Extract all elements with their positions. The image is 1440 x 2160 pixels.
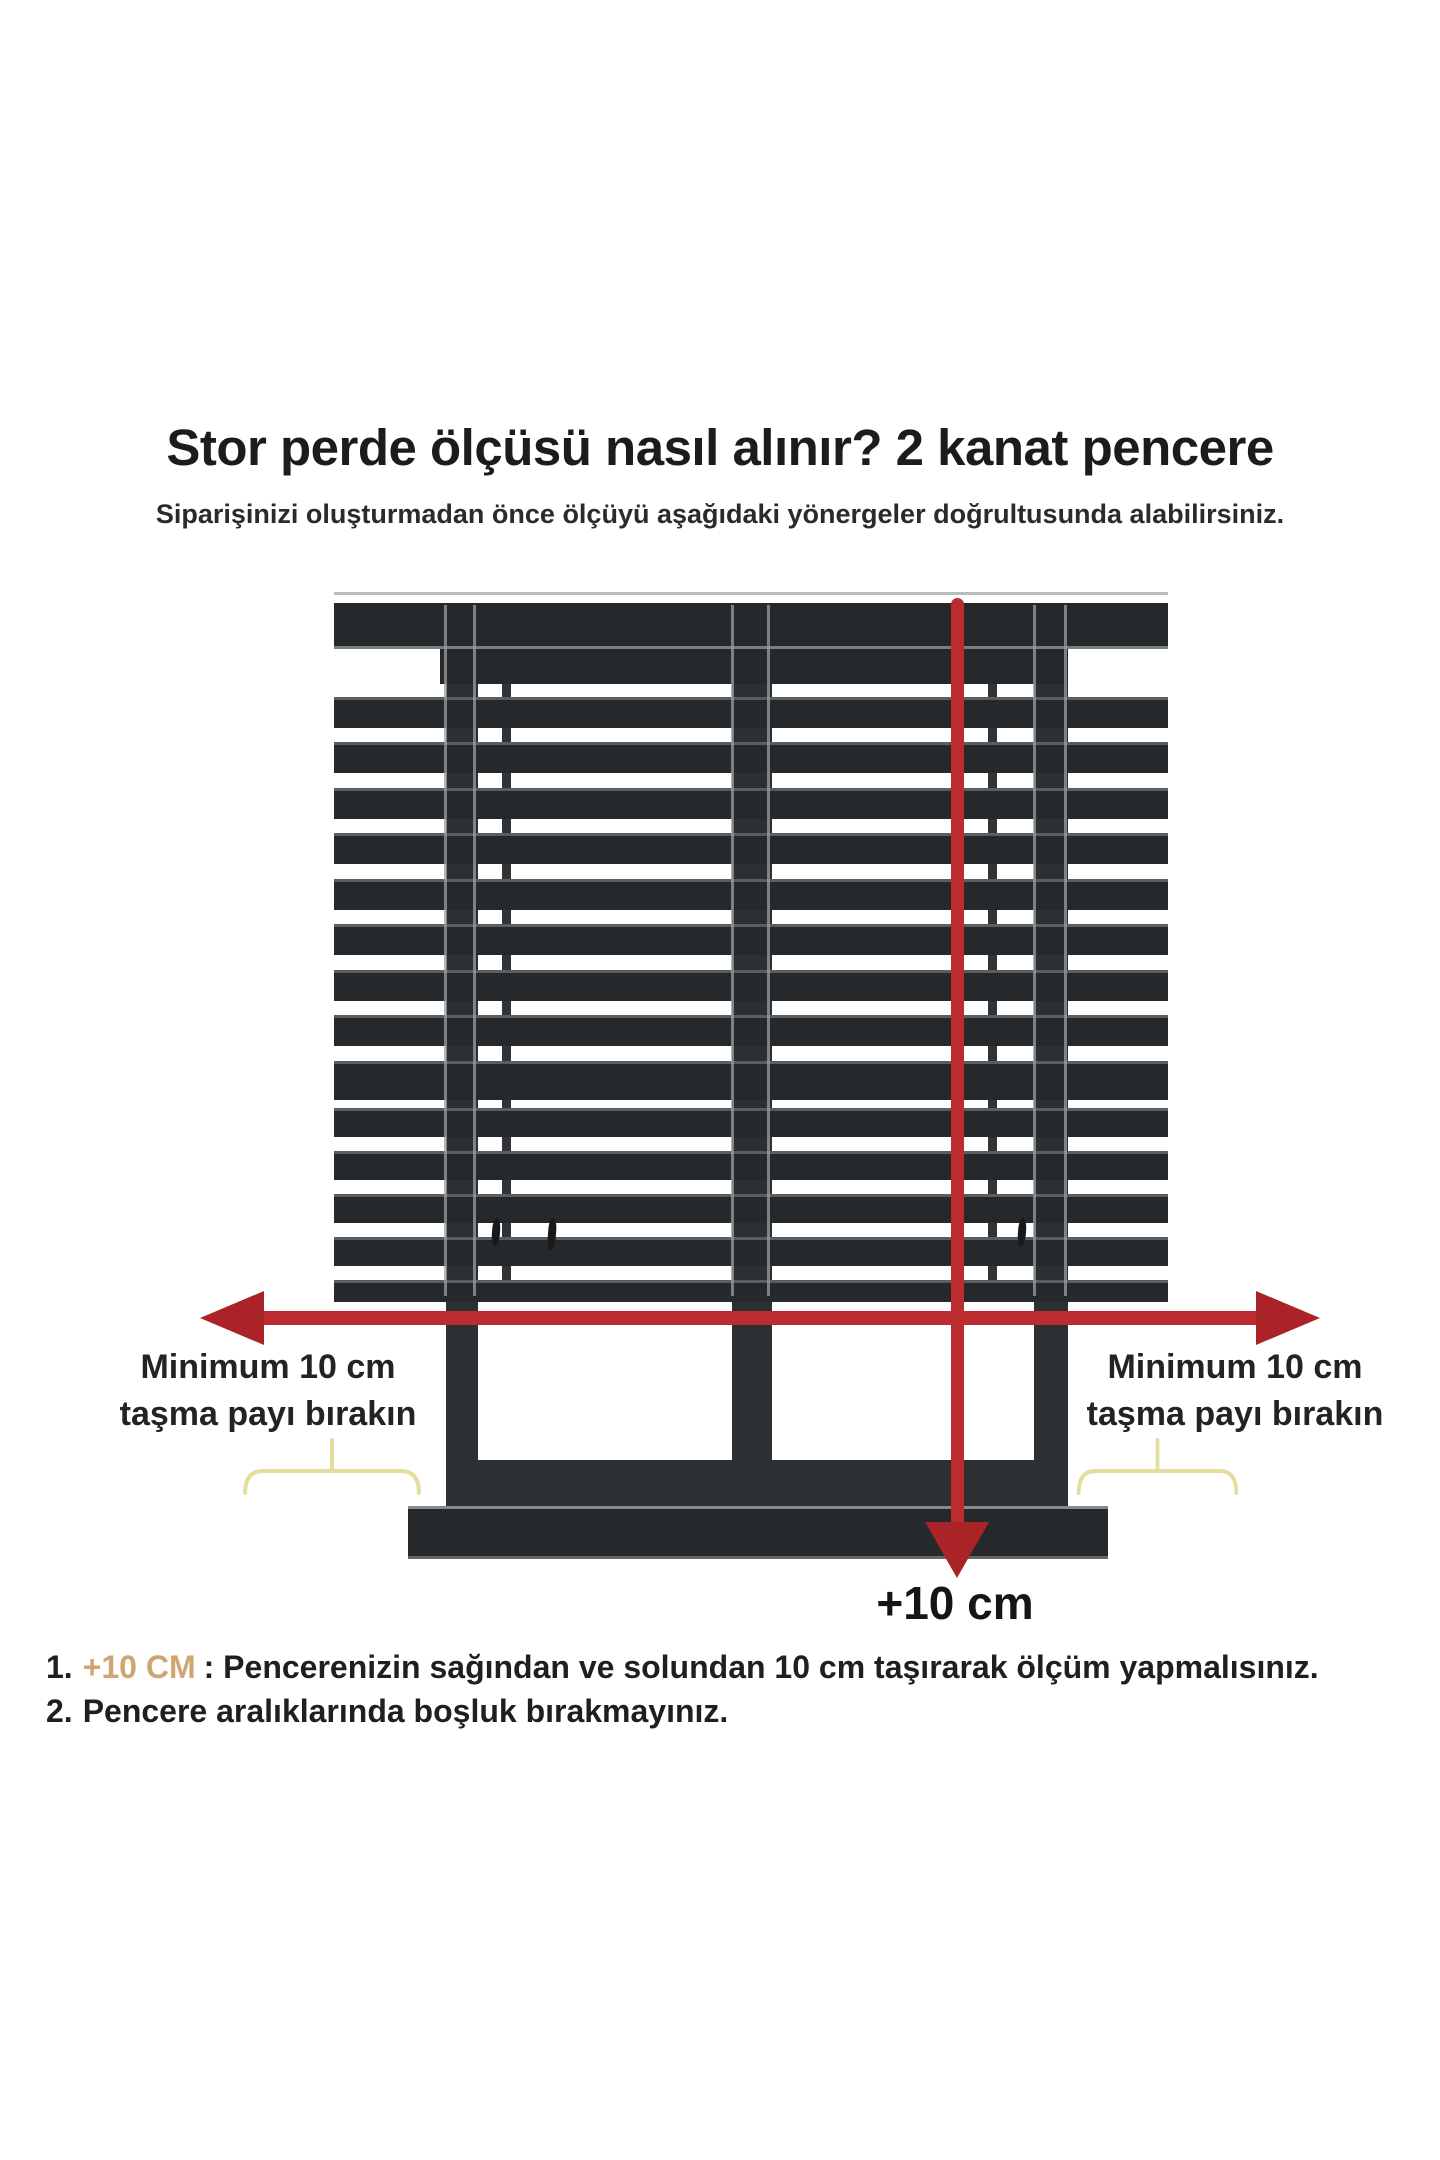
instruction-2-number: 2. xyxy=(46,1693,73,1729)
right-overhang-label: Minimum 10 cm taşma payı bırakın xyxy=(1035,1344,1435,1438)
blind-slat xyxy=(334,697,1168,728)
blind-top-rail xyxy=(334,603,1168,649)
frame-edge-highlight xyxy=(473,605,476,1296)
height-measure-arrowhead-icon xyxy=(925,1522,989,1578)
blind-slat xyxy=(334,1061,1168,1100)
window-frame-bottom-rail xyxy=(446,1460,1068,1508)
instruction-item-2: 2.Pencere aralıklarında boşluk bırakmayı… xyxy=(46,1689,1406,1733)
frame-edge-highlight xyxy=(1033,605,1036,1296)
blind-slat xyxy=(334,788,1168,819)
blind-slat xyxy=(334,833,1168,864)
left-overhang-label: Minimum 10 cm taşma payı bırakın xyxy=(68,1344,468,1438)
window-top-frame xyxy=(440,649,1068,684)
blind-slat xyxy=(334,1194,1168,1223)
width-measure-arrow xyxy=(258,1311,1262,1325)
page-subtitle: Siparişinizi oluşturmadan önce ölçüyü aş… xyxy=(0,499,1440,530)
page-title: Stor perde ölçüsü nasıl alınır? 2 kanat … xyxy=(0,418,1440,477)
left-overhang-brace-icon xyxy=(241,1435,423,1495)
width-measure-left-arrowhead-icon xyxy=(200,1291,264,1345)
left-overhang-label-line1: Minimum 10 cm xyxy=(68,1344,468,1391)
blind-slat xyxy=(334,879,1168,910)
measurement-guide-page: Stor perde ölçüsü nasıl alınır? 2 kanat … xyxy=(0,0,1440,2160)
right-overhang-label-line1: Minimum 10 cm xyxy=(1035,1344,1435,1391)
instructions-list: 1.+10 CM: Pencerenizin sağından ve solun… xyxy=(46,1645,1406,1733)
right-overhang-label-line2: taşma payı bırakın xyxy=(1035,1391,1435,1438)
width-measure-right-arrowhead-icon xyxy=(1256,1291,1320,1345)
blind-slat xyxy=(334,1015,1168,1046)
instruction-2-text: Pencere aralıklarında boşluk bırakmayını… xyxy=(83,1693,729,1729)
blind-slat xyxy=(334,1108,1168,1137)
height-measure-arrow xyxy=(951,598,964,1524)
instruction-item-1: 1.+10 CM: Pencerenizin sağından ve solun… xyxy=(46,1645,1406,1689)
left-overhang-label-line2: taşma payı bırakın xyxy=(68,1391,468,1438)
blind-slat xyxy=(334,1151,1168,1180)
blind-slat xyxy=(334,742,1168,773)
instruction-1-number: 1. xyxy=(46,1649,73,1685)
blind-mount-line xyxy=(334,592,1168,595)
instruction-1-text: : Pencerenizin sağından ve solundan 10 c… xyxy=(204,1649,1319,1685)
frame-edge-highlight xyxy=(1064,605,1067,1296)
instruction-1-highlight: +10 CM xyxy=(83,1649,196,1685)
window-sill xyxy=(408,1506,1108,1559)
frame-edge-highlight xyxy=(444,605,447,1296)
blind-slat xyxy=(334,1280,1168,1302)
right-overhang-brace-icon xyxy=(1075,1435,1240,1495)
blind-slat xyxy=(334,970,1168,1001)
blind-slat xyxy=(334,924,1168,955)
frame-edge-highlight xyxy=(731,605,734,1296)
blind-slat xyxy=(334,1237,1168,1266)
plus-10cm-label: +10 cm xyxy=(805,1576,1105,1630)
frame-edge-highlight xyxy=(767,605,770,1296)
